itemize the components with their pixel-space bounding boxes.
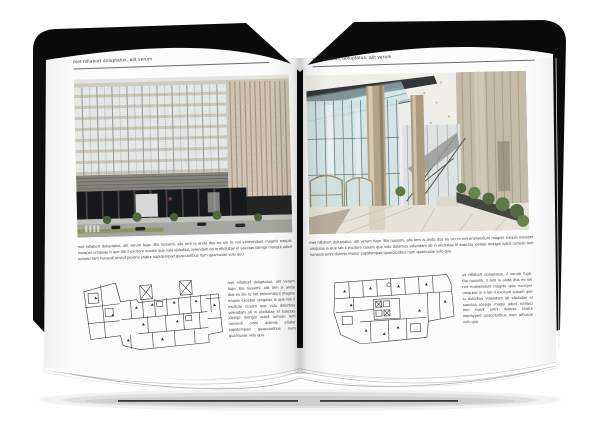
right-header-rule xyxy=(313,60,535,68)
main-facade xyxy=(74,80,228,176)
lobby-photo xyxy=(306,71,529,235)
right-page-content: met nillabort doluptatus, alit verum xyxy=(302,44,541,367)
right-floor-plan xyxy=(329,269,459,350)
left-floor-plan xyxy=(80,270,224,361)
right-page-header: met nillabort doluptatus, alit verum xyxy=(313,54,392,62)
left-column-text: met nillabort doluptatus, alit verum fug… xyxy=(228,278,297,346)
exterior-photo xyxy=(74,74,293,237)
backdrop: met nillabort doluptatus, alit verum xyxy=(0,0,600,446)
right-column-text: sit nillabort doluptatus, il verum fuge.… xyxy=(462,271,533,338)
right-paragraph: met nillabort doluptatus, alit verum fug… xyxy=(309,234,533,258)
book-shadow xyxy=(38,389,562,411)
left-page-content: met nillabort doluptatus, alit verum xyxy=(71,47,299,364)
left-page-header: met nillabort doluptatus, alit verum xyxy=(73,56,152,64)
left-header-rule xyxy=(73,62,269,69)
left-paragraph: met nillabort doluptatus, alit verum fug… xyxy=(78,238,292,263)
